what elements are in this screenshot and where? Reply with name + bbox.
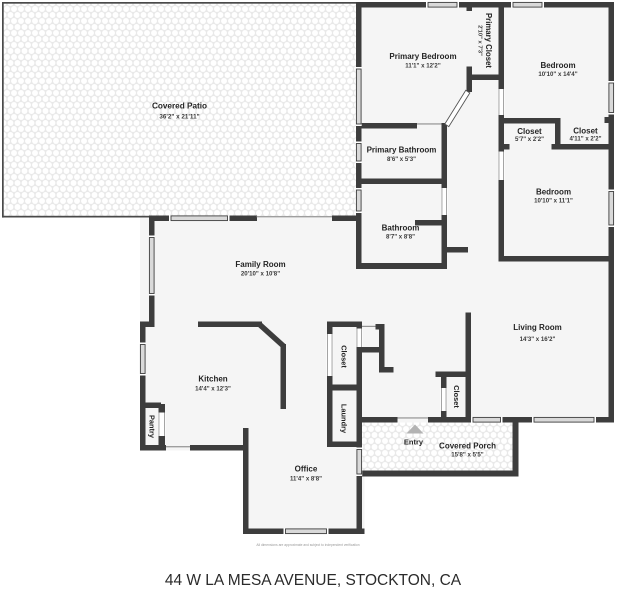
svg-text:Pantry: Pantry bbox=[147, 415, 156, 439]
svg-text:5'7" x 2'2": 5'7" x 2'2" bbox=[515, 136, 544, 143]
svg-text:Bedroom: Bedroom bbox=[540, 61, 575, 70]
svg-text:Living Room: Living Room bbox=[513, 323, 561, 332]
svg-text:15'8" x 5'5": 15'8" x 5'5" bbox=[451, 452, 484, 459]
svg-text:Kitchen: Kitchen bbox=[198, 375, 227, 384]
svg-text:Primary Bedroom: Primary Bedroom bbox=[389, 52, 456, 61]
svg-text:Closet: Closet bbox=[517, 127, 542, 136]
svg-text:Primary Closet: Primary Closet bbox=[484, 13, 493, 68]
svg-text:Closet: Closet bbox=[573, 127, 598, 136]
svg-text:Primary Bathroom: Primary Bathroom bbox=[367, 146, 437, 155]
svg-text:Covered Porch: Covered Porch bbox=[439, 442, 496, 451]
svg-text:Laundry: Laundry bbox=[340, 404, 349, 434]
svg-text:4'11" x 2'2": 4'11" x 2'2" bbox=[569, 136, 601, 143]
svg-text:Family Room: Family Room bbox=[235, 260, 285, 269]
svg-text:14'4" x 12'3": 14'4" x 12'3" bbox=[195, 386, 231, 393]
svg-text:20'10" x 10'8": 20'10" x 10'8" bbox=[241, 271, 280, 278]
svg-text:Covered Patio: Covered Patio bbox=[152, 102, 207, 111]
svg-text:14'3" x 16'2": 14'3" x 16'2" bbox=[520, 336, 556, 343]
svg-text:36'2" x 21'11": 36'2" x 21'11" bbox=[159, 114, 199, 121]
svg-text:11'4" x 8'8": 11'4" x 8'8" bbox=[290, 476, 322, 483]
svg-text:10'10" x 14'4": 10'10" x 14'4" bbox=[538, 71, 577, 78]
svg-text:Closet: Closet bbox=[340, 345, 349, 368]
svg-text:10'10" x 11'1": 10'10" x 11'1" bbox=[534, 197, 573, 204]
svg-text:Office: Office bbox=[295, 465, 318, 474]
svg-text:8'6" x 5'3": 8'6" x 5'3" bbox=[387, 156, 416, 163]
svg-text:Entry: Entry bbox=[404, 438, 424, 447]
svg-text:8'7" x 8'8": 8'7" x 8'8" bbox=[386, 234, 415, 241]
svg-text:11'1" x 12'2": 11'1" x 12'2" bbox=[405, 63, 441, 70]
svg-text:Bedroom: Bedroom bbox=[536, 188, 571, 197]
svg-text:44 W LA MESA AVENUE, STOCKTON,: 44 W LA MESA AVENUE, STOCKTON, CA bbox=[165, 572, 462, 589]
svg-text:Closet: Closet bbox=[452, 385, 461, 408]
svg-text:Bathroom: Bathroom bbox=[382, 224, 420, 233]
svg-text:All dimensions are approximate: All dimensions are approximate and subje… bbox=[256, 543, 359, 547]
svg-text:2'10" x 7'3": 2'10" x 7'3" bbox=[477, 25, 483, 56]
